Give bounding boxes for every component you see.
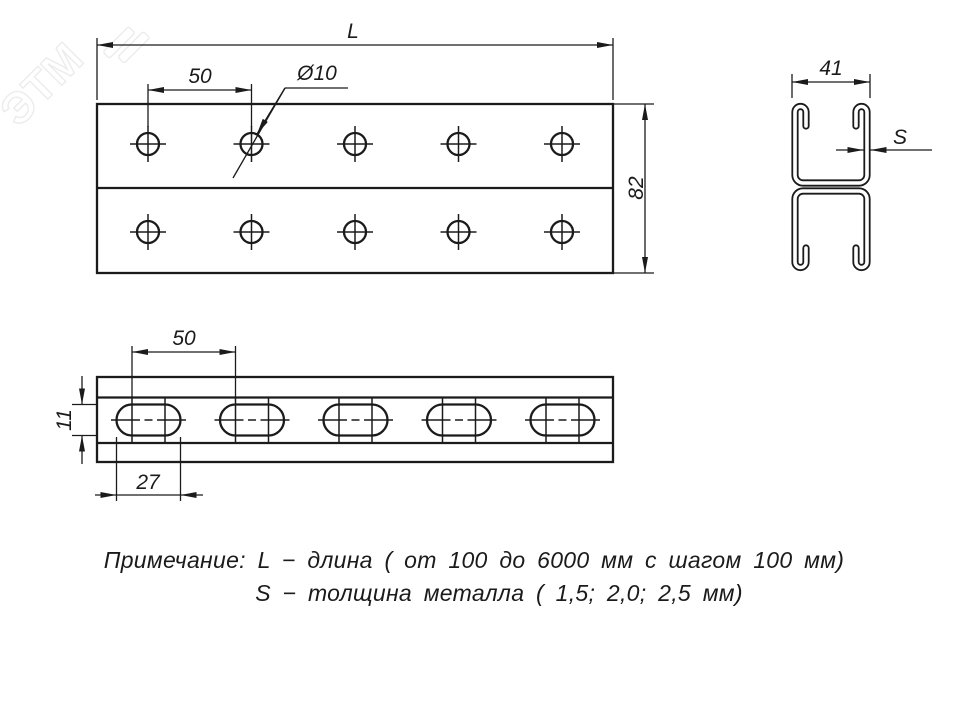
dim-thickness-S: S [836,126,932,150]
dim-slot-length: 27 [95,437,203,501]
drawing-page: ЭТМ L [0,0,960,720]
dim-hole-diameter: Ø10 [233,62,348,178]
dim-label-11: 11 [53,409,76,431]
dim-height-82: 82 [613,104,654,273]
dim-slot-width: 11 [53,376,97,464]
watermark-text: ЭТМ [0,34,93,136]
dim-slot-pitch: 50 [132,327,236,399]
side-view: 50 11 27 [53,327,613,501]
dim-label-50-side: 50 [172,327,196,350]
side-slots [111,398,600,442]
section-view: 41 S [792,57,932,268]
dim-length-L: L [97,20,613,100]
dim-label-27: 27 [135,471,161,494]
note-line2: S − толщина металла ( 1,5; 2,0; 2,5 мм) [255,580,743,606]
dim-hole-pitch: 50 [148,65,252,127]
note-line1: Примечание: L − длина ( от 100 до 6000 м… [104,547,845,573]
front-holes-row1 [130,126,580,162]
watermark-logo: ЭТМ [0,22,150,136]
front-holes-row2 [130,214,580,250]
dim-label-50-front: 50 [188,65,212,88]
notes: Примечание: L − длина ( от 100 до 6000 м… [104,547,845,606]
front-view: L 50 Ø10 82 [97,20,654,273]
dim-width-41: 41 [792,57,870,98]
dim-label-82: 82 [625,176,648,200]
technical-drawing: ЭТМ L [0,0,960,720]
dim-label-S: S [893,126,907,149]
dim-label-41: 41 [819,57,842,80]
dim-label-diameter: Ø10 [296,62,337,85]
dim-label-L: L [347,20,359,43]
